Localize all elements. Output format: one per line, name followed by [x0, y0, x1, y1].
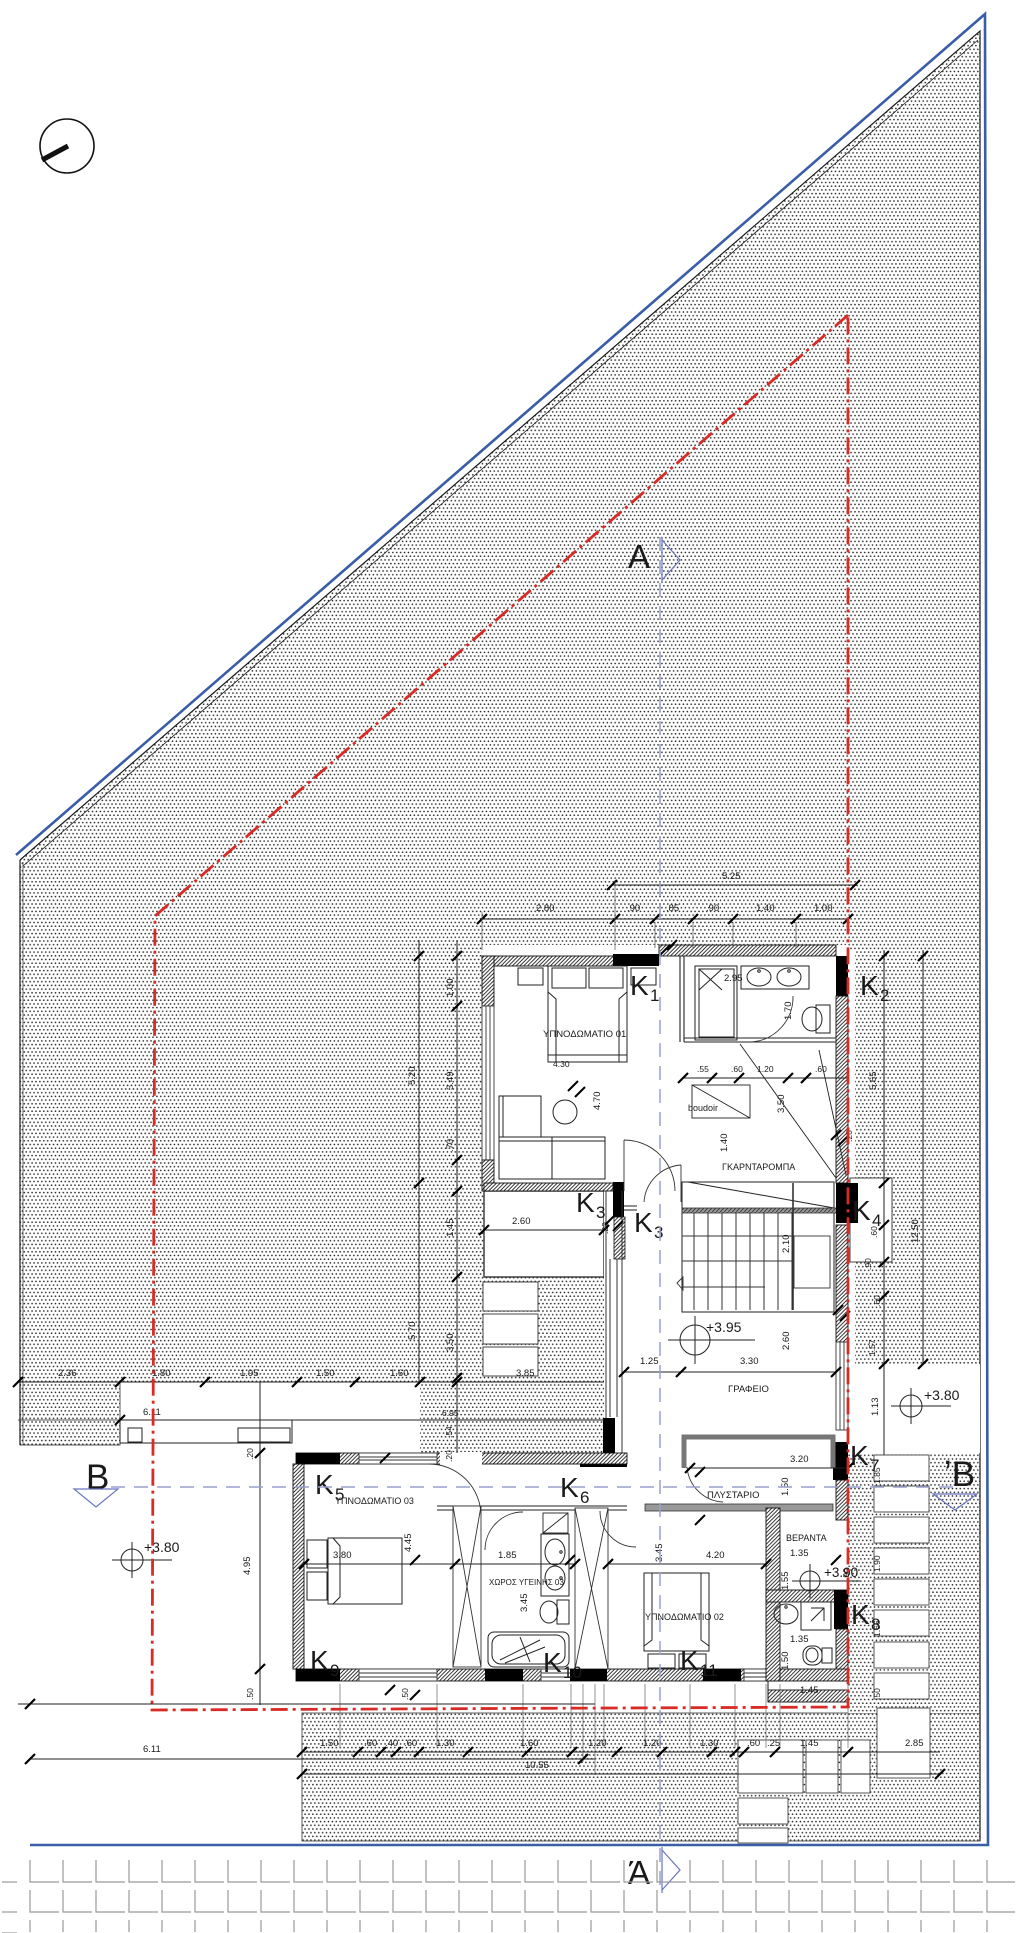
svg-text:4.95: 4.95 [242, 1557, 253, 1576]
svg-text:10.55: 10.55 [525, 1760, 549, 1771]
svg-text:10: 10 [563, 1663, 582, 1682]
svg-text:1.70: 1.70 [783, 1002, 794, 1021]
svg-text:ΥΠΝΟΔΩΜΑΤΙΟ 01: ΥΠΝΟΔΩΜΑΤΙΟ 01 [543, 1029, 626, 1040]
svg-text:ΠΛΥΣΤΑΡΙΟ: ΠΛΥΣΤΑΡΙΟ [707, 1490, 760, 1501]
svg-text:1: 1 [650, 986, 659, 1005]
svg-text:1.45: 1.45 [800, 1685, 819, 1696]
svg-text:1.20: 1.20 [643, 1738, 662, 1749]
svg-text:.60: .60 [869, 1226, 879, 1238]
svg-text:1.95: 1.95 [240, 1368, 259, 1379]
svg-text:4.70: 4.70 [592, 1092, 603, 1111]
svg-text:3: 3 [596, 1203, 605, 1222]
svg-text:1.20: 1.20 [757, 1064, 774, 1074]
svg-text:4.20: 4.20 [706, 1550, 725, 1561]
svg-text:1.85: 1.85 [872, 1467, 882, 1484]
svg-text:K: K [680, 1645, 699, 1676]
svg-text:1.40: 1.40 [719, 1134, 730, 1153]
svg-text:1.80: 1.80 [152, 1368, 171, 1379]
svg-text:ΥΠΝΟΔΩΜΑΤΙΟ 02: ΥΠΝΟΔΩΜΑΤΙΟ 02 [645, 1612, 724, 1622]
svg-text:.40: .40 [385, 1738, 398, 1749]
svg-text:3.45: 3.45 [519, 1594, 530, 1613]
svg-text:K: K [850, 1440, 869, 1471]
svg-text:1.35: 1.35 [790, 1548, 809, 1559]
svg-text:6.95: 6.95 [442, 1408, 459, 1418]
svg-text:2.85: 2.85 [905, 1738, 924, 1749]
svg-text:+3.80: +3.80 [924, 1387, 960, 1403]
svg-text:.90: .90 [863, 1258, 873, 1270]
svg-text:.60: .60 [872, 1295, 882, 1307]
svg-text:2.36: 2.36 [58, 1368, 77, 1379]
svg-text:1.50: 1.50 [316, 1368, 335, 1379]
svg-text:K: K [315, 1469, 334, 1500]
svg-text:3.80: 3.80 [333, 1550, 352, 1561]
svg-text:5.65: 5.65 [868, 1072, 879, 1091]
svg-text:.55: .55 [697, 1064, 709, 1074]
svg-text:boudoir: boudoir [688, 1103, 718, 1113]
svg-text:2: 2 [880, 986, 889, 1005]
svg-text:5.25: 5.25 [722, 871, 741, 882]
svg-text:.60: .60 [815, 1064, 827, 1074]
svg-text:1.25: 1.25 [640, 1356, 659, 1367]
svg-text:5.70: 5.70 [407, 1322, 418, 1341]
svg-text:2.60: 2.60 [512, 1216, 531, 1227]
svg-text:6: 6 [580, 1488, 589, 1507]
svg-text:.60: .60 [404, 1738, 417, 1749]
svg-text:.90: .90 [841, 1568, 851, 1580]
svg-text:K: K [310, 1645, 329, 1676]
svg-text:1.35: 1.35 [790, 1634, 809, 1645]
svg-text:1.60: 1.60 [390, 1368, 409, 1379]
svg-text:.50: .50 [245, 1688, 255, 1700]
svg-text:,54: ,54 [444, 1426, 454, 1438]
svg-text:1.55: 1.55 [780, 1572, 791, 1591]
svg-text:5: 5 [335, 1485, 344, 1504]
svg-text:3.85: 3.85 [516, 1368, 535, 1379]
svg-text:.20: .20 [444, 1450, 454, 1462]
svg-text:.25: .25 [767, 1738, 780, 1749]
svg-text:.50: .50 [872, 1688, 882, 1700]
svg-text:+3.95: +3.95 [706, 1319, 742, 1335]
svg-text:.20: .20 [245, 1448, 255, 1460]
svg-text:ΒΕΡΑΝΤΑ: ΒΕΡΑΝΤΑ [786, 1533, 827, 1543]
svg-text:K: K [576, 1187, 595, 1218]
svg-text:3.49: 3.49 [445, 1072, 456, 1091]
svg-text:9: 9 [330, 1661, 339, 1680]
svg-text:2.95: 2.95 [724, 973, 743, 984]
svg-text:5.20: 5.20 [407, 1067, 418, 1086]
svg-text:1.50: 1.50 [780, 1652, 791, 1671]
svg-text:.50: .50 [400, 1688, 410, 1700]
svg-text:ΓΡΑΦΕΙΟ: ΓΡΑΦΕΙΟ [728, 1384, 769, 1395]
svg-text:ʼB: ʼB [944, 1455, 975, 1494]
svg-text:11: 11 [700, 1661, 718, 1680]
svg-text:1.40: 1.40 [756, 903, 775, 914]
svg-text:1.50: 1.50 [320, 1738, 339, 1749]
svg-text:Ά: Ά [628, 1854, 650, 1891]
svg-text:ΥΠΝΟΔΩΜΑΤΙΟ 03: ΥΠΝΟΔΩΜΑΤΙΟ 03 [335, 1496, 414, 1506]
svg-text:6.11: 6.11 [143, 1744, 161, 1755]
svg-text:.60: .60 [364, 1738, 377, 1749]
svg-text:+3.80: +3.80 [144, 1539, 180, 1555]
svg-text:K: K [860, 970, 879, 1001]
svg-text:1.57: 1.57 [867, 1339, 877, 1356]
svg-text:1.00: 1.00 [814, 903, 833, 914]
svg-text:3.30: 3.30 [740, 1356, 759, 1367]
svg-text:1.90: 1.90 [872, 1555, 882, 1572]
svg-text:1.85: 1.85 [498, 1550, 517, 1561]
svg-text:1.30: 1.30 [436, 1738, 455, 1749]
svg-text:12.50: 12.50 [910, 1219, 921, 1243]
svg-text:.60: .60 [731, 1064, 743, 1074]
svg-text:2.60: 2.60 [781, 1332, 792, 1351]
svg-text:.60: .60 [747, 1738, 760, 1749]
svg-text:4.45: 4.45 [403, 1534, 414, 1553]
svg-text:.90: .90 [627, 903, 640, 914]
svg-text:3: 3 [654, 1223, 663, 1242]
svg-text:1.45: 1.45 [445, 1219, 456, 1238]
svg-text:K: K [543, 1647, 562, 1678]
svg-text:1.00: 1.00 [445, 979, 456, 998]
svg-text:1.66: 1.66 [872, 1620, 882, 1637]
svg-text:2.80: 2.80 [536, 903, 555, 914]
svg-text:.70: .70 [445, 1139, 456, 1152]
svg-text:B: B [86, 1458, 109, 1497]
svg-text:3.50: 3.50 [445, 1334, 456, 1353]
svg-text:3.50: 3.50 [776, 1095, 787, 1114]
svg-text:3.20: 3.20 [790, 1454, 809, 1465]
svg-text:.85: .85 [666, 903, 679, 914]
svg-text:1.45: 1.45 [800, 1738, 819, 1749]
svg-text:1.30: 1.30 [700, 1738, 719, 1749]
svg-text:K: K [852, 1195, 871, 1226]
svg-text:1.13: 1.13 [870, 1398, 881, 1417]
svg-text:1.20: 1.20 [588, 1738, 607, 1749]
svg-text:2.10: 2.10 [781, 1235, 792, 1254]
svg-text:ΓΚΑΡΝΤΑΡΟΜΠΑ: ΓΚΑΡΝΤΑΡΟΜΠΑ [722, 1162, 795, 1172]
svg-text:ΧΩΡΟΣ ΥΓΕΙΝΗΣ 03: ΧΩΡΟΣ ΥΓΕΙΝΗΣ 03 [489, 1578, 564, 1587]
svg-text:4.30: 4.30 [553, 1059, 570, 1069]
svg-text:K: K [630, 970, 649, 1001]
svg-text:K: K [851, 1599, 870, 1630]
svg-text:A: A [628, 538, 650, 575]
svg-text:K: K [634, 1207, 653, 1238]
svg-text:.90: .90 [706, 903, 719, 914]
svg-text:1.60: 1.60 [520, 1738, 539, 1749]
